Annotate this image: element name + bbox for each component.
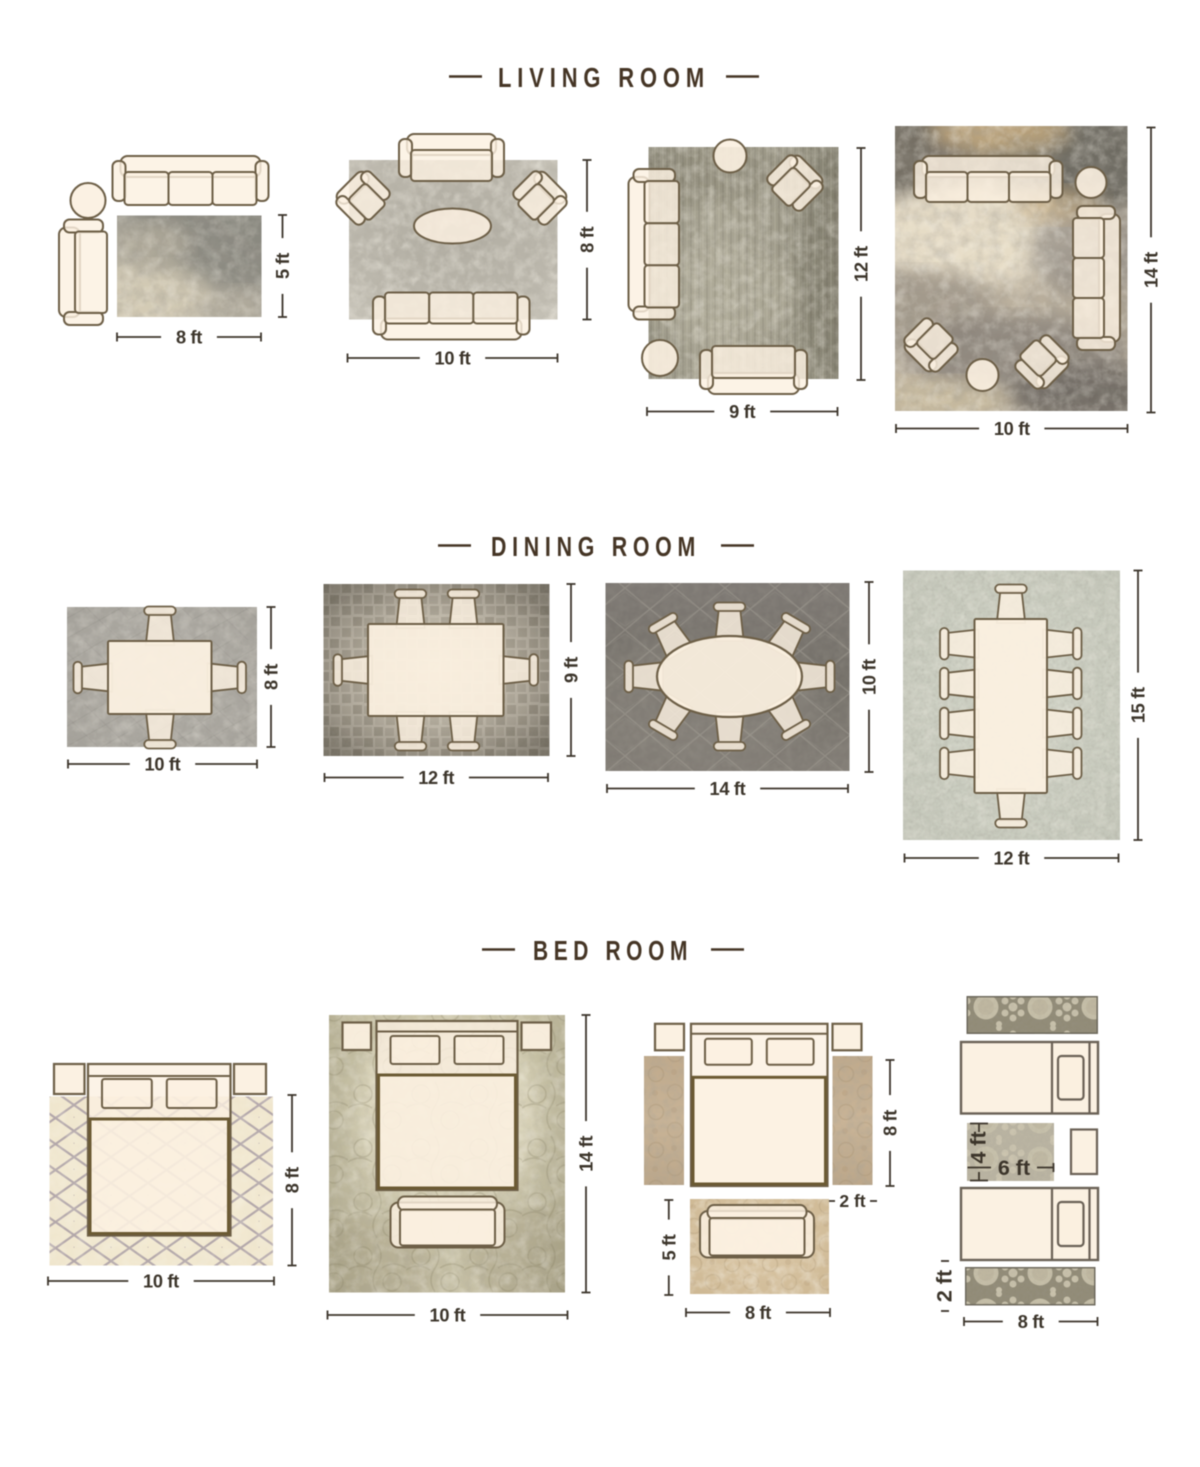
svg-text:10 ft: 10 ft xyxy=(430,1306,466,1326)
svg-text:10 ft: 10 ft xyxy=(143,1272,179,1292)
svg-text:8 ft: 8 ft xyxy=(176,328,202,348)
svg-text:5 ft: 5 ft xyxy=(659,1234,679,1260)
svg-text:BED ROOM: BED ROOM xyxy=(533,935,693,966)
svg-text:8 ft: 8 ft xyxy=(745,1303,771,1323)
svg-text:12 ft: 12 ft xyxy=(994,849,1030,869)
svg-text:12 ft: 12 ft xyxy=(418,768,454,788)
svg-text:8 ft: 8 ft xyxy=(578,227,598,253)
svg-text:8 ft: 8 ft xyxy=(283,1167,303,1193)
svg-text:8 ft: 8 ft xyxy=(1018,1312,1044,1332)
svg-text:10 ft: 10 ft xyxy=(435,349,471,369)
svg-text:10 ft: 10 ft xyxy=(145,755,181,775)
svg-text:DINING ROOM: DINING ROOM xyxy=(491,531,701,562)
svg-text:4 ft: 4 ft xyxy=(967,1131,991,1163)
svg-text:LIVING ROOM: LIVING ROOM xyxy=(498,62,710,93)
svg-text:10 ft: 10 ft xyxy=(994,419,1030,439)
svg-text:12 ft: 12 ft xyxy=(852,246,872,282)
svg-text:14 ft: 14 ft xyxy=(710,779,746,799)
svg-text:8 ft: 8 ft xyxy=(881,1110,901,1136)
svg-text:8 ft: 8 ft xyxy=(262,664,282,690)
svg-text:2 ft: 2 ft xyxy=(933,1270,957,1302)
svg-text:9 ft: 9 ft xyxy=(562,657,582,683)
svg-text:5 ft: 5 ft xyxy=(273,253,293,279)
svg-text:9 ft: 9 ft xyxy=(729,402,755,422)
svg-text:14 ft: 14 ft xyxy=(1142,252,1162,288)
svg-text:14 ft: 14 ft xyxy=(577,1136,597,1172)
svg-text:15 ft: 15 ft xyxy=(1129,687,1149,723)
svg-text:2 ft: 2 ft xyxy=(839,1191,865,1211)
svg-text:6 ft: 6 ft xyxy=(998,1156,1030,1180)
svg-text:10 ft: 10 ft xyxy=(860,659,880,695)
